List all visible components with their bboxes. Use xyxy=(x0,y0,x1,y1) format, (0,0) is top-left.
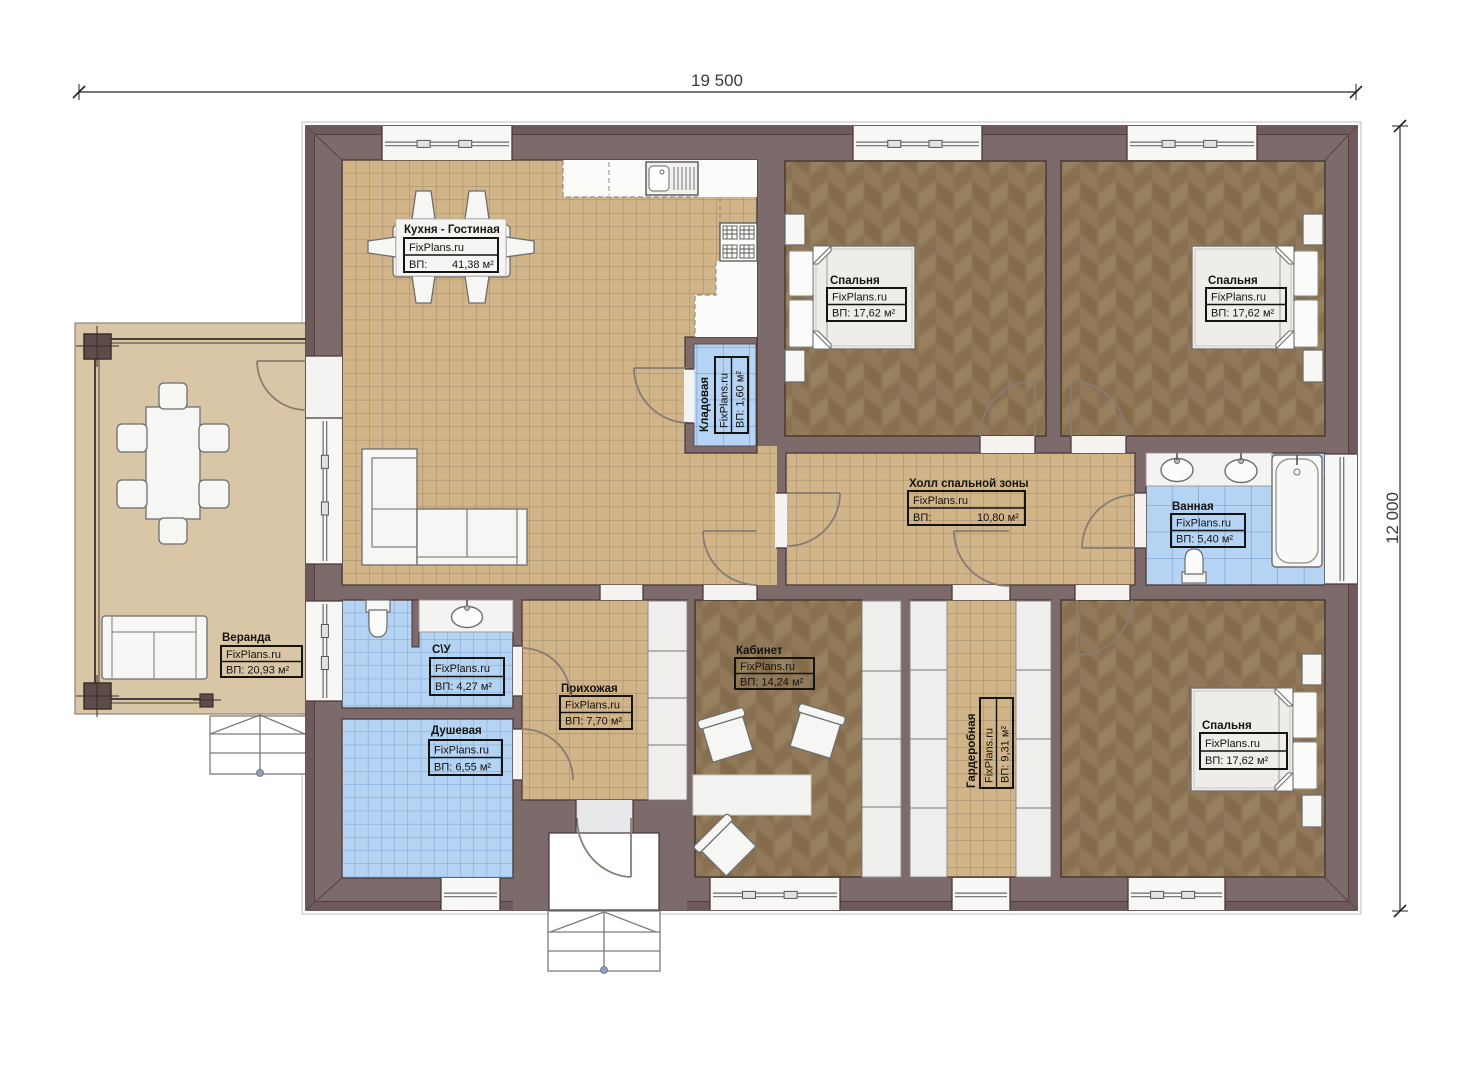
svg-text:ВП: 4,27 м²: ВП: 4,27 м² xyxy=(435,681,492,693)
svg-text:Спальня: Спальня xyxy=(830,275,880,287)
svg-text:Душевая: Душевая xyxy=(431,725,482,737)
svg-text:41,38 м²: 41,38 м² xyxy=(452,259,494,271)
svg-text:ВП: 1,60 м²: ВП: 1,60 м² xyxy=(735,371,747,428)
svg-text:Гардеробная: Гардеробная xyxy=(966,714,978,788)
svg-text:Холл спальной зоны: Холл спальной зоны xyxy=(909,478,1029,490)
svg-text:ВП: 17,62 м²: ВП: 17,62 м² xyxy=(832,308,896,320)
svg-text:FixPlans.ru: FixPlans.ru xyxy=(435,663,490,675)
svg-text:FixPlans.ru: FixPlans.ru xyxy=(1176,518,1231,530)
svg-text:ВП:: ВП: xyxy=(409,259,427,271)
svg-text:12 000: 12 000 xyxy=(1383,492,1402,544)
svg-text:ВП: 9,31 м²: ВП: 9,31 м² xyxy=(1000,726,1012,783)
svg-text:10,80 м²: 10,80 м² xyxy=(977,512,1019,524)
svg-text:19 500: 19 500 xyxy=(691,71,743,90)
svg-text:FixPlans.ru: FixPlans.ru xyxy=(740,661,795,673)
svg-text:ВП: 17,62 м²: ВП: 17,62 м² xyxy=(1211,308,1275,320)
svg-text:FixPlans.ru: FixPlans.ru xyxy=(409,242,464,254)
svg-text:Кухня - Гостиная: Кухня - Гостиная xyxy=(404,224,500,236)
svg-text:FixPlans.ru: FixPlans.ru xyxy=(1205,738,1260,750)
svg-text:FixPlans.ru: FixPlans.ru xyxy=(1211,292,1266,304)
svg-text:FixPlans.ru: FixPlans.ru xyxy=(226,649,281,661)
svg-text:FixPlans.ru: FixPlans.ru xyxy=(719,373,731,428)
svg-text:Ванная: Ванная xyxy=(1172,501,1214,513)
svg-text:ВП: 5,40 м²: ВП: 5,40 м² xyxy=(1176,534,1233,546)
svg-text:Спальня: Спальня xyxy=(1202,720,1252,732)
svg-text:FixPlans.ru: FixPlans.ru xyxy=(565,700,620,712)
svg-text:Кладовая: Кладовая xyxy=(699,377,711,432)
svg-text:ВП:: ВП: xyxy=(913,512,931,524)
svg-text:ВП: 14,24 м²: ВП: 14,24 м² xyxy=(740,677,804,689)
svg-text:Спальня: Спальня xyxy=(1208,275,1258,287)
svg-text:С\У: С\У xyxy=(432,644,452,656)
svg-text:ВП: 6,55 м²: ВП: 6,55 м² xyxy=(434,762,491,774)
svg-text:ВП: 17,62 м²: ВП: 17,62 м² xyxy=(1205,755,1269,767)
svg-text:FixPlans.ru: FixPlans.ru xyxy=(984,728,996,783)
svg-text:FixPlans.ru: FixPlans.ru xyxy=(832,292,887,304)
svg-text:FixPlans.ru: FixPlans.ru xyxy=(434,745,489,757)
svg-text:Веранда: Веранда xyxy=(222,632,271,644)
svg-text:Кабинет: Кабинет xyxy=(736,645,783,657)
svg-text:ВП: 7,70 м²: ВП: 7,70 м² xyxy=(565,716,622,728)
svg-text:ВП: 20,93 м²: ВП: 20,93 м² xyxy=(226,665,290,677)
svg-text:FixPlans.ru: FixPlans.ru xyxy=(913,495,968,507)
